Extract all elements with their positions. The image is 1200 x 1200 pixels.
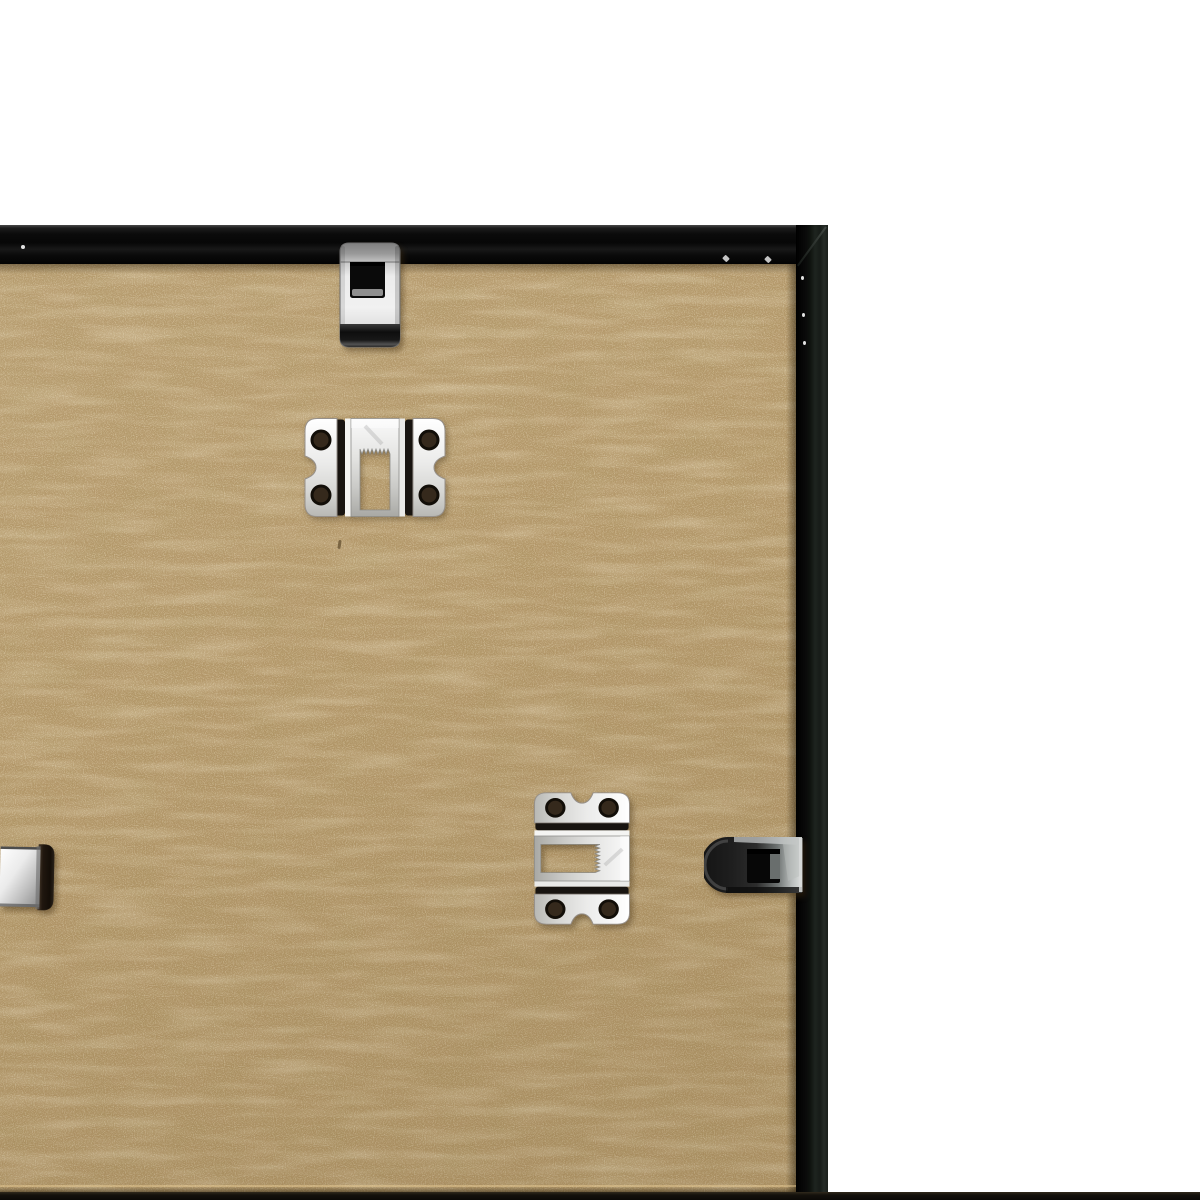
frame-bottom-edge (0, 1192, 1200, 1200)
spring-clip-left (0, 841, 57, 912)
spring-clip-top (338, 242, 402, 348)
mdf-backing-board (0, 262, 797, 1193)
rail-glint (801, 276, 804, 280)
sawtooth-hanger-side (533, 790, 630, 927)
sawtooth-hanger-top (302, 418, 448, 518)
rail-glint (803, 341, 806, 345)
dust-glint (21, 245, 25, 249)
board-vignette (0, 262, 797, 1193)
spring-clip-right (704, 835, 806, 895)
frame-top-rail (0, 225, 828, 264)
rail-glint (802, 313, 805, 317)
frame-right-rail (796, 225, 828, 1193)
photo-canvas (0, 0, 1200, 1200)
